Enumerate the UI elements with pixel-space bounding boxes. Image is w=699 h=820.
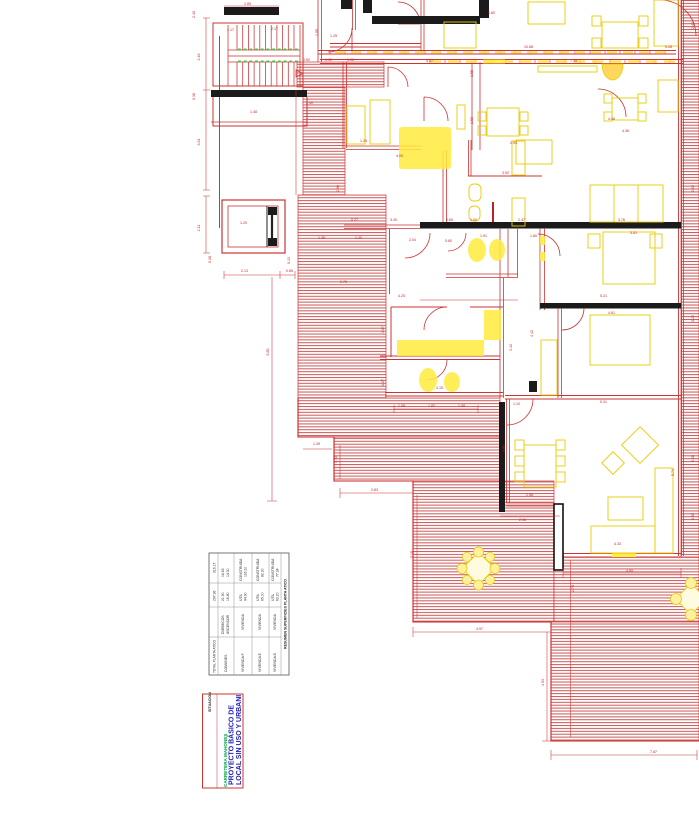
svg-text:316.17: 316.17: [213, 563, 217, 573]
svg-text:5.21: 5.21: [600, 294, 607, 298]
svg-text:2.79: 2.79: [571, 585, 575, 592]
svg-text:2.06: 2.06: [519, 518, 526, 522]
svg-text:4.42: 4.42: [530, 330, 534, 337]
svg-text:1.40: 1.40: [306, 101, 313, 105]
svg-text:1.40: 1.40: [355, 236, 362, 240]
svg-text:2.85: 2.85: [244, 2, 251, 6]
svg-text:4.36: 4.36: [622, 129, 629, 133]
svg-text:6.80: 6.80: [266, 349, 270, 356]
svg-text:1.50: 1.50: [470, 117, 474, 124]
svg-text:VIVIENDA: VIVIENDA: [241, 613, 245, 630]
svg-text:VIVIENDA E: VIVIENDA E: [258, 652, 262, 672]
svg-text:1.27: 1.27: [381, 379, 385, 386]
svg-text:1.82: 1.82: [428, 404, 435, 408]
svg-text:297.36: 297.36: [213, 591, 217, 601]
svg-text:VIVIENDA F: VIVIENDA F: [241, 653, 245, 672]
svg-text:UTIL: UTIL: [239, 594, 243, 601]
svg-text:2.11: 2.11: [197, 225, 201, 232]
svg-text:1.87: 1.87: [381, 326, 385, 333]
svg-text:21.90: 21.90: [221, 592, 225, 601]
svg-text:2.04: 2.04: [409, 238, 416, 242]
svg-text:1.39: 1.39: [313, 442, 320, 446]
svg-text:CARRETERA MAHONES: CARRETERA MAHONES: [223, 734, 228, 787]
svg-text:4.25: 4.25: [398, 294, 405, 298]
svg-text:1.80: 1.80: [530, 234, 537, 238]
svg-text:4.33: 4.33: [614, 542, 621, 546]
svg-text:CONSTRUIDA: CONSTRUIDA: [239, 558, 243, 581]
svg-text:14.30: 14.30: [226, 568, 230, 577]
svg-text:LOCAL SIN USO Y URBANI: LOCAL SIN USO Y URBANI: [236, 695, 243, 785]
svg-text:3.42: 3.42: [509, 344, 513, 351]
svg-text:1.25: 1.25: [360, 139, 367, 143]
svg-text:0.27: 0.27: [351, 218, 358, 222]
svg-text:2.93: 2.93: [510, 141, 517, 145]
svg-text:ASCENSOR: ASCENSOR: [226, 614, 230, 634]
svg-text:65.00: 65.00: [261, 592, 265, 601]
svg-text:1.08: 1.08: [398, 404, 405, 408]
svg-text:4.61: 4.61: [608, 311, 615, 315]
svg-text:0.28: 0.28: [691, 455, 695, 462]
svg-text:5.74: 5.74: [671, 469, 675, 476]
svg-text:3.40: 3.40: [390, 218, 397, 222]
svg-text:2.75: 2.75: [340, 280, 347, 284]
svg-text:2.47: 2.47: [518, 218, 525, 222]
svg-text:1.25: 1.25: [330, 34, 337, 38]
svg-text:3.61: 3.61: [197, 139, 201, 146]
svg-text:0.38: 0.38: [192, 93, 196, 100]
svg-text:2.62: 2.62: [691, 185, 695, 192]
svg-text:0.85: 0.85: [286, 269, 293, 273]
svg-text:COMUNES: COMUNES: [224, 654, 228, 672]
svg-text:DORMICOS: DORMICOS: [221, 615, 225, 634]
svg-text:0.28: 0.28: [208, 256, 212, 263]
svg-text:PROYECTO BÁSICO DE: PROYECTO BÁSICO DE: [227, 705, 236, 785]
svg-text:CONSTRUIDA: CONSTRUIDA: [271, 558, 275, 581]
svg-text:10.88: 10.88: [524, 45, 533, 49]
svg-text:0.28: 0.28: [665, 45, 672, 49]
svg-text:0.60: 0.60: [445, 239, 452, 243]
svg-text:TOTAL PLANTA ATICO: TOTAL PLANTA ATICO: [213, 640, 217, 673]
svg-text:1.85: 1.85: [315, 29, 319, 36]
svg-text:VIVIENDA: VIVIENDA: [273, 613, 277, 630]
svg-text:4.15: 4.15: [436, 386, 443, 390]
svg-text:2.13: 2.13: [241, 269, 248, 273]
svg-text:2.42: 2.42: [691, 22, 695, 29]
svg-text:2.17: 2.17: [271, 27, 278, 31]
svg-text:0.92: 0.92: [303, 58, 310, 62]
svg-text:4.89: 4.89: [626, 569, 633, 573]
svg-text:3.22: 3.22: [691, 315, 695, 322]
svg-text:4.00: 4.00: [396, 154, 403, 158]
svg-text:1.58: 1.58: [458, 404, 465, 408]
svg-text:7.39: 7.39: [570, 59, 577, 63]
svg-text:UTIL: UTIL: [256, 594, 260, 601]
svg-text:3.93: 3.93: [502, 445, 506, 452]
svg-text:2.40: 2.40: [192, 11, 196, 18]
svg-text:5.85: 5.85: [691, 513, 695, 520]
svg-text:4.46: 4.46: [608, 117, 615, 121]
svg-text:2.90: 2.90: [336, 185, 340, 192]
svg-text:4.53: 4.53: [541, 679, 545, 686]
svg-text:CONSTRUIDA: CONSTRUIDA: [256, 558, 260, 581]
svg-text:0.92: 0.92: [325, 58, 332, 62]
svg-text:5.27: 5.27: [426, 59, 433, 63]
svg-text:1.00: 1.00: [470, 218, 477, 222]
svg-text:1.35: 1.35: [318, 236, 325, 240]
svg-text:3.52: 3.52: [502, 171, 509, 175]
svg-text:SITUACION: SITUACION: [208, 692, 212, 712]
svg-text:RESUMEN SUPERFICIES PLANTA ATI: RESUMEN SUPERFICIES PLANTA ATICO: [284, 579, 288, 649]
svg-text:5.18: 5.18: [410, 551, 414, 558]
svg-text:2.83: 2.83: [371, 488, 378, 492]
svg-text:94.90: 94.90: [244, 592, 248, 601]
svg-text:1.17: 1.17: [227, 28, 234, 32]
svg-text:63.20: 63.20: [276, 592, 280, 601]
svg-text:1.10: 1.10: [513, 402, 520, 406]
svg-text:3.76: 3.76: [618, 218, 625, 222]
svg-text:0.13: 0.13: [287, 257, 291, 264]
svg-text:VIVIENDA D: VIVIENDA D: [273, 652, 277, 672]
svg-text:2.46: 2.46: [197, 54, 201, 61]
svg-text:UTIL: UTIL: [271, 594, 275, 601]
svg-text:1.55: 1.55: [470, 70, 474, 77]
svg-text:3.51: 3.51: [630, 231, 637, 235]
svg-text:1.72: 1.72: [334, 456, 338, 463]
svg-text:77.34: 77.34: [276, 568, 280, 577]
svg-text:16.63: 16.63: [221, 568, 225, 577]
svg-text:4.97: 4.97: [476, 627, 483, 631]
svg-text:7.87: 7.87: [650, 750, 657, 754]
svg-text:0.60: 0.60: [446, 218, 453, 222]
svg-text:1.48: 1.48: [250, 110, 257, 114]
svg-text:VIVIENDA: VIVIENDA: [258, 613, 262, 630]
svg-text:116.20: 116.20: [244, 567, 248, 577]
svg-text:0.80: 0.80: [488, 11, 495, 15]
svg-text:16.80: 16.80: [226, 592, 230, 601]
svg-text:2.98: 2.98: [526, 493, 533, 497]
svg-text:1.20: 1.20: [240, 221, 247, 225]
svg-text:5.31: 5.31: [600, 400, 607, 404]
svg-text:1.06: 1.06: [347, 58, 354, 62]
svg-text:82.30: 82.30: [261, 568, 265, 577]
svg-text:1.91: 1.91: [480, 234, 487, 238]
